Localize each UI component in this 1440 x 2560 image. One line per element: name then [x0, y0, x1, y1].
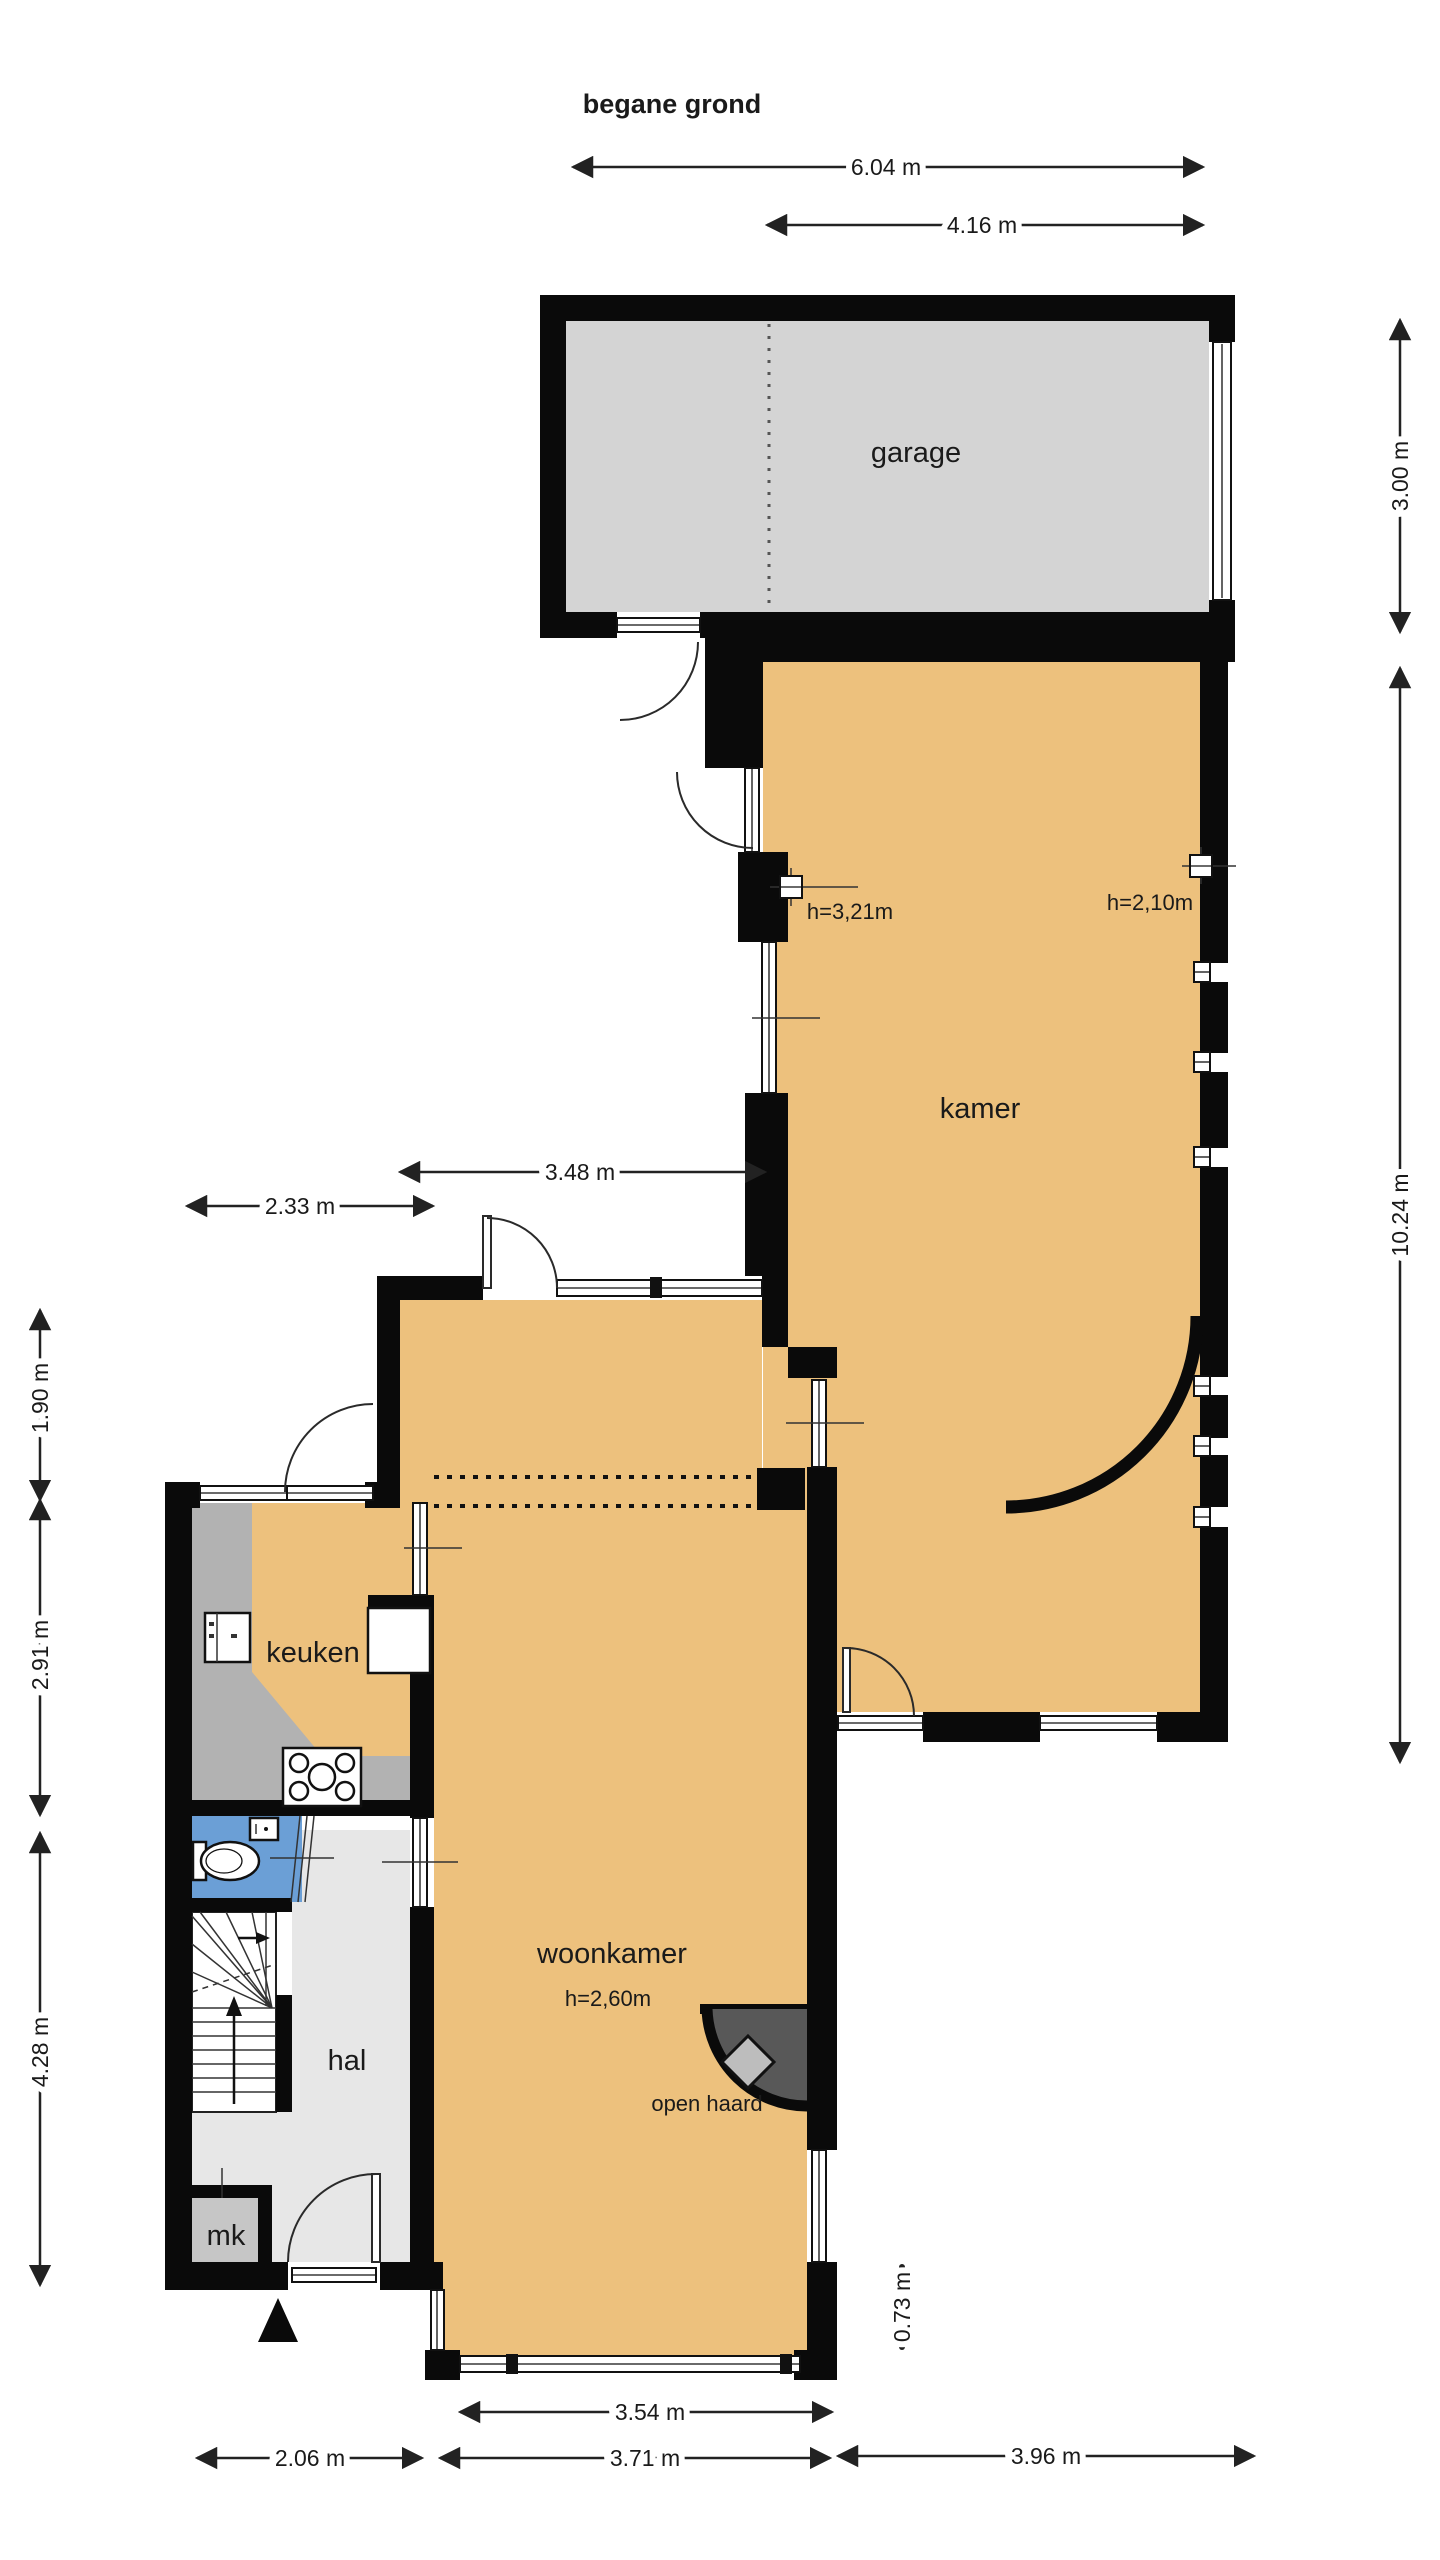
label-mk: mk: [207, 2220, 246, 2252]
window-keuken-woonkamer: [413, 1503, 427, 1595]
label-woonkamer: woonkamer: [536, 1938, 687, 1970]
door-leaf-front: [372, 2174, 380, 2262]
window-kamer-right-5: [1194, 1436, 1230, 1456]
svg-text:2.91 m: 2.91 m: [27, 1620, 53, 1690]
toilet-icon: [193, 1842, 259, 1880]
label-height-kamer-right: h=2,10m: [1107, 890, 1193, 915]
svg-text:0.73 m: 0.73 m: [889, 2272, 915, 2342]
window-kamer-right-6: [1194, 1507, 1230, 1527]
dimension-right-kamer: 10.24 m: [1387, 668, 1413, 1762]
svg-text:3.96 m: 3.96 m: [1011, 2443, 1081, 2469]
svg-text:10.24 m: 10.24 m: [1387, 1173, 1413, 1256]
door-glazing-keuken: [287, 1486, 373, 1500]
stove-icon: [283, 1748, 361, 1806]
window-kamer-right-4: [1194, 1376, 1230, 1396]
label-keuken: keuken: [266, 1637, 360, 1669]
svg-text:2.06 m: 2.06 m: [275, 2445, 345, 2471]
window-woonkamer-bottom: [460, 2354, 800, 2374]
svg-text:6.04 m: 6.04 m: [851, 154, 921, 180]
fridge-icon: [205, 1613, 250, 1662]
window-kamer-bottom-a: [838, 1716, 923, 1730]
floorplan-canvas: 6.04 m 4.16 m 3.00 m 10.24 m 3.48 m 2.33…: [0, 0, 1440, 2560]
window-kamer-right-2: [1194, 1052, 1230, 1072]
dimension-left-middle: 2.91 m: [27, 1500, 53, 1815]
door-glazing-garage: [617, 618, 700, 632]
svg-text:4.16 m: 4.16 m: [947, 212, 1017, 238]
door-swing-keuken: [285, 1404, 373, 1492]
svg-text:3.54 m: 3.54 m: [615, 2399, 685, 2425]
floorplan-page: 6.04 m 4.16 m 3.00 m 10.24 m 3.48 m 2.33…: [0, 0, 1440, 2560]
door-leaf-middleroom: [483, 1216, 491, 1288]
dimension-keuken-width: 2.33 m: [187, 1193, 433, 1219]
svg-text:1.90 m: 1.90 m: [27, 1363, 53, 1433]
dimension-bottom-hal: 2.06 m: [197, 2445, 422, 2471]
window-step-side: [431, 2290, 444, 2350]
window-garage-right: [1213, 342, 1231, 600]
door-glazing-front: [292, 2268, 376, 2282]
window-kamer-right-1: [1194, 962, 1230, 982]
door-swing-garage: [620, 642, 698, 720]
label-height-kamer-left: h=3,21m: [807, 899, 893, 924]
door-swing-middleroom: [487, 1218, 557, 1288]
svg-text:3.48 m: 3.48 m: [545, 1159, 615, 1185]
window-kamer-right-3: [1194, 1147, 1230, 1167]
label-garage: garage: [871, 437, 961, 469]
cabinet-icon: [368, 1608, 430, 1673]
window-middleroom-top: [557, 1277, 762, 1298]
label-open-haard: open haard: [651, 2091, 762, 2116]
dimension-bottom-kamer: 3.96 m: [838, 2443, 1254, 2469]
window-woonkamer-kamer-lower: [812, 2150, 826, 2262]
svg-text:3.00 m: 3.00 m: [1387, 441, 1413, 511]
label-height-woonkamer: h=2,60m: [565, 1986, 651, 2011]
dimension-top-inner: 4.16 m: [767, 212, 1203, 238]
svg-text:2.33 m: 2.33 m: [265, 1193, 335, 1219]
window-kamer-bottom-b: [1040, 1716, 1157, 1730]
page-title: begane grond: [583, 89, 762, 119]
dimension-middleroom-width: 3.48 m: [400, 1159, 765, 1185]
dimension-top-outer: 6.04 m: [573, 154, 1203, 180]
room-hal-floor-lower: [192, 2112, 292, 2185]
door-glazing-kamer-entry: [745, 768, 759, 852]
room-woonkamer-floor: [434, 1504, 807, 2355]
dimension-bottom-woonkamer: 3.71 m: [440, 2445, 830, 2471]
dimension-right-garage: 3.00 m: [1387, 320, 1413, 632]
sink-icon: [250, 1818, 278, 1840]
entrance-arrow-icon: [258, 2298, 298, 2342]
dimension-left-upper: 1.90 m: [27, 1310, 53, 1500]
label-hal: hal: [328, 2045, 367, 2077]
dimension-bottom-window: 3.54 m: [460, 2399, 832, 2425]
svg-text:3.71 m: 3.71 m: [610, 2445, 680, 2471]
dimension-left-lower: 4.28 m: [27, 1833, 53, 2285]
window-keuken-top: [200, 1486, 287, 1500]
door-leaf-garden: [843, 1648, 850, 1712]
dimension-right-offset: 0.73 m: [889, 2264, 915, 2350]
door-swing-kamer-entry: [677, 772, 753, 848]
label-kamer: kamer: [940, 1093, 1021, 1125]
svg-text:4.28 m: 4.28 m: [27, 2017, 53, 2087]
